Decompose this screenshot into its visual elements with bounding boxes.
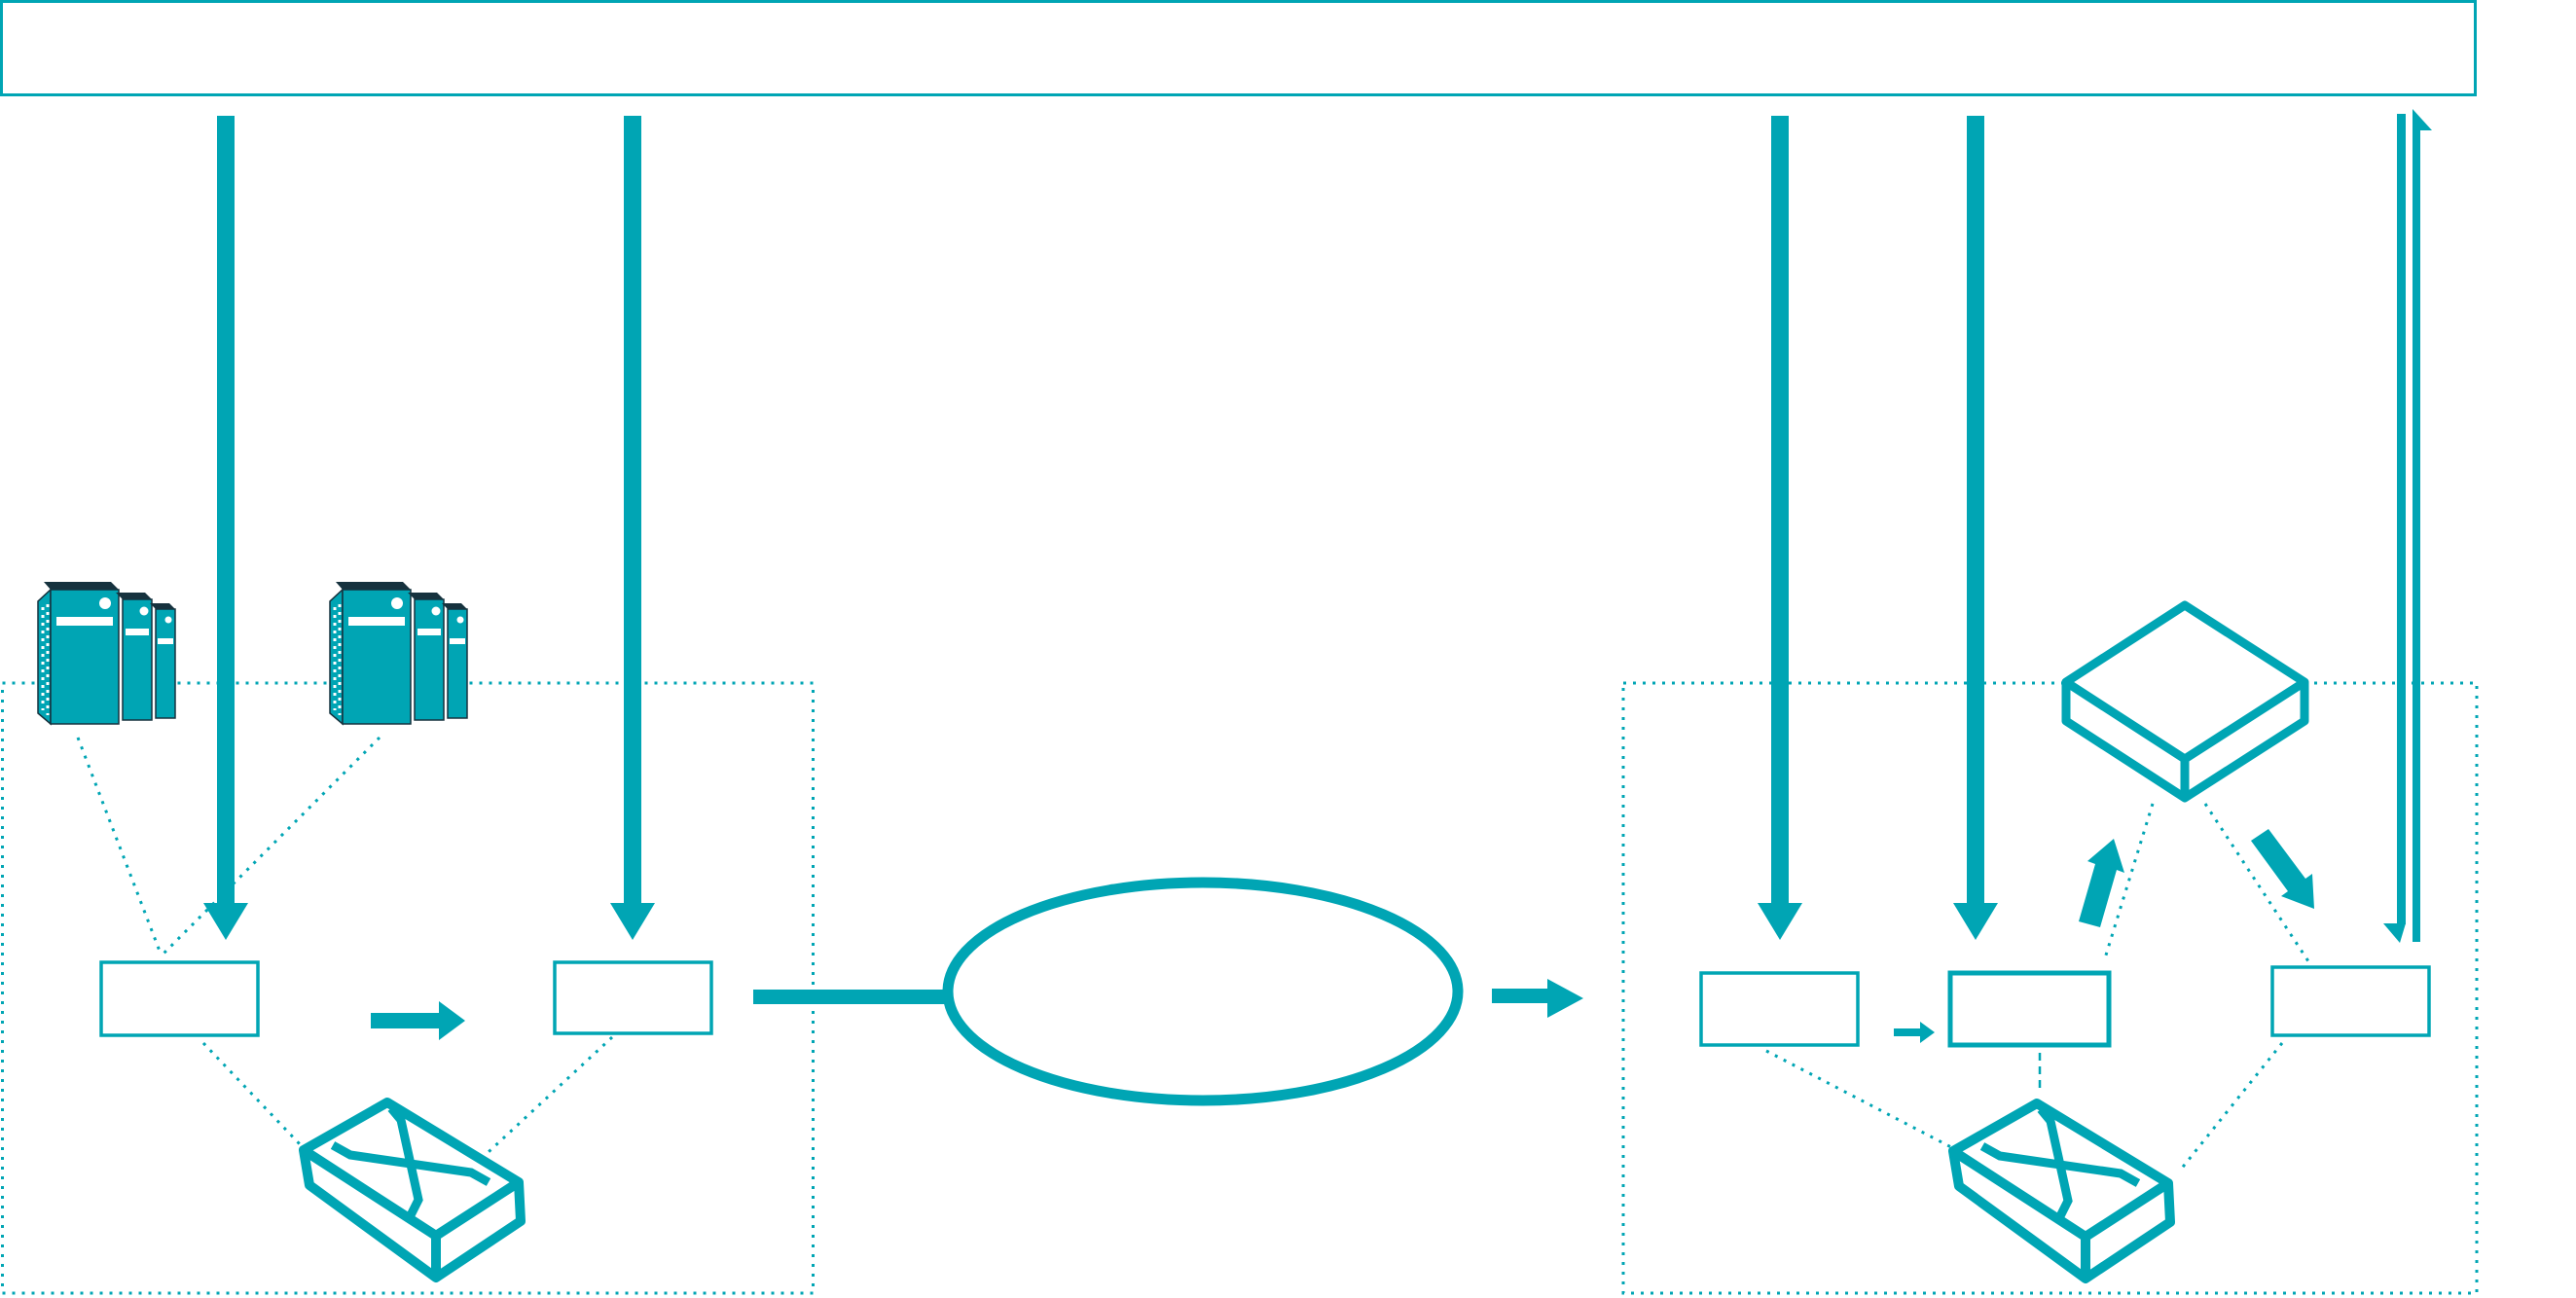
arrow-head [610,903,655,940]
switch-icon-left [304,1102,521,1278]
connector-box2-to-cloud [753,990,948,1004]
arrow-head [1920,1022,1935,1043]
flow-arrow-right-box1-to-box2 [371,1001,465,1040]
arrow-shaft [1771,116,1789,904]
flow-arrow-right-rbox1-to-rbox2 [1894,1022,1935,1043]
router-platform-icon [2066,605,2304,798]
flow-arrow-right-cloud-to-right-zone [1492,979,1583,1018]
right-node-box-2 [1950,973,2109,1045]
arrow-head [203,903,248,940]
left-node-box-2 [555,962,711,1033]
arrow-shaft [217,116,235,904]
dotted-link-box1-switch-left [203,1043,302,1146]
dotted-link-box2-switch-left [477,1037,612,1163]
right-node-box-3 [2272,967,2429,1035]
flow-arrow-down-4 [1953,116,1998,940]
arrow-shaft [1492,989,1547,1003]
arrow-down-thin [2383,114,2406,943]
flow-arrow-down-2 [610,116,655,940]
diagonal-arrow-down-platform-to-rbox3 [2251,829,2314,909]
dotted-link-server1-box1 [78,738,161,954]
banner [2,2,2476,95]
arrow-shaft [2413,128,2420,942]
dotted-link-server2-box1 [163,738,380,954]
arrow-shaft [1967,116,1984,904]
arrow-head [2413,109,2432,130]
network-cloud-ellipse [948,883,1458,1100]
left-node-box-1 [101,962,258,1035]
arrow-shaft [624,116,641,904]
flow-arrow-down-3 [1758,116,1802,940]
arrow-head [1547,979,1583,1018]
arrow-head [439,1001,465,1040]
arrow-shaft [371,1013,439,1028]
dotted-link-rbox3-switch-right [2180,1043,2282,1171]
server-stack-icon-1 [35,578,177,735]
dotted-link-rbox1-switch-right [1766,1051,1976,1160]
arrow-head [1953,903,1998,940]
server-stack-icon-2 [327,578,469,735]
diagram-page [0,0,2576,1298]
switch-icon-right [1953,1103,2170,1279]
arrow-up-thin [2413,109,2432,942]
arrow-head [1758,903,1802,940]
arrow-head [2383,923,2406,943]
diagram-canvas [0,0,2576,1298]
arrow-shaft [2397,114,2406,924]
diagonal-arrow-up-rbox2-to-platform [2079,839,2124,927]
banner-box [2,2,2476,95]
flow-arrow-down-1 [203,116,248,940]
arrow-shaft [1894,1028,1920,1036]
right-node-box-1 [1701,973,1858,1045]
